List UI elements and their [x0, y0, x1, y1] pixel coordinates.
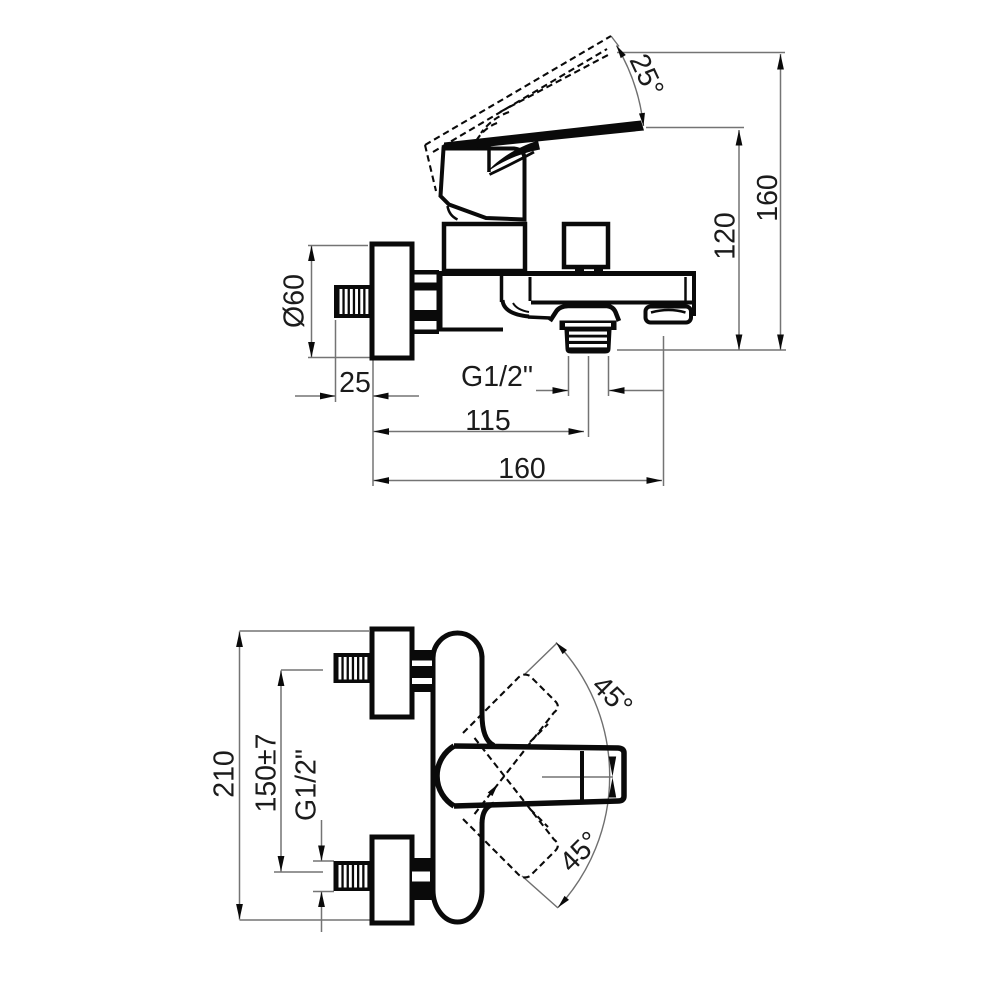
svg-text:Ø60: Ø60 — [279, 274, 311, 328]
svg-text:150±7: 150±7 — [251, 733, 283, 812]
svg-text:25: 25 — [339, 367, 371, 399]
svg-text:115: 115 — [465, 405, 510, 437]
svg-text:G1/2": G1/2" — [461, 361, 533, 393]
svg-text:160: 160 — [498, 453, 546, 485]
svg-text:160: 160 — [752, 174, 784, 222]
svg-text:210: 210 — [209, 750, 241, 798]
svg-text:G1/2": G1/2" — [291, 749, 323, 821]
svg-text:120: 120 — [710, 212, 742, 260]
